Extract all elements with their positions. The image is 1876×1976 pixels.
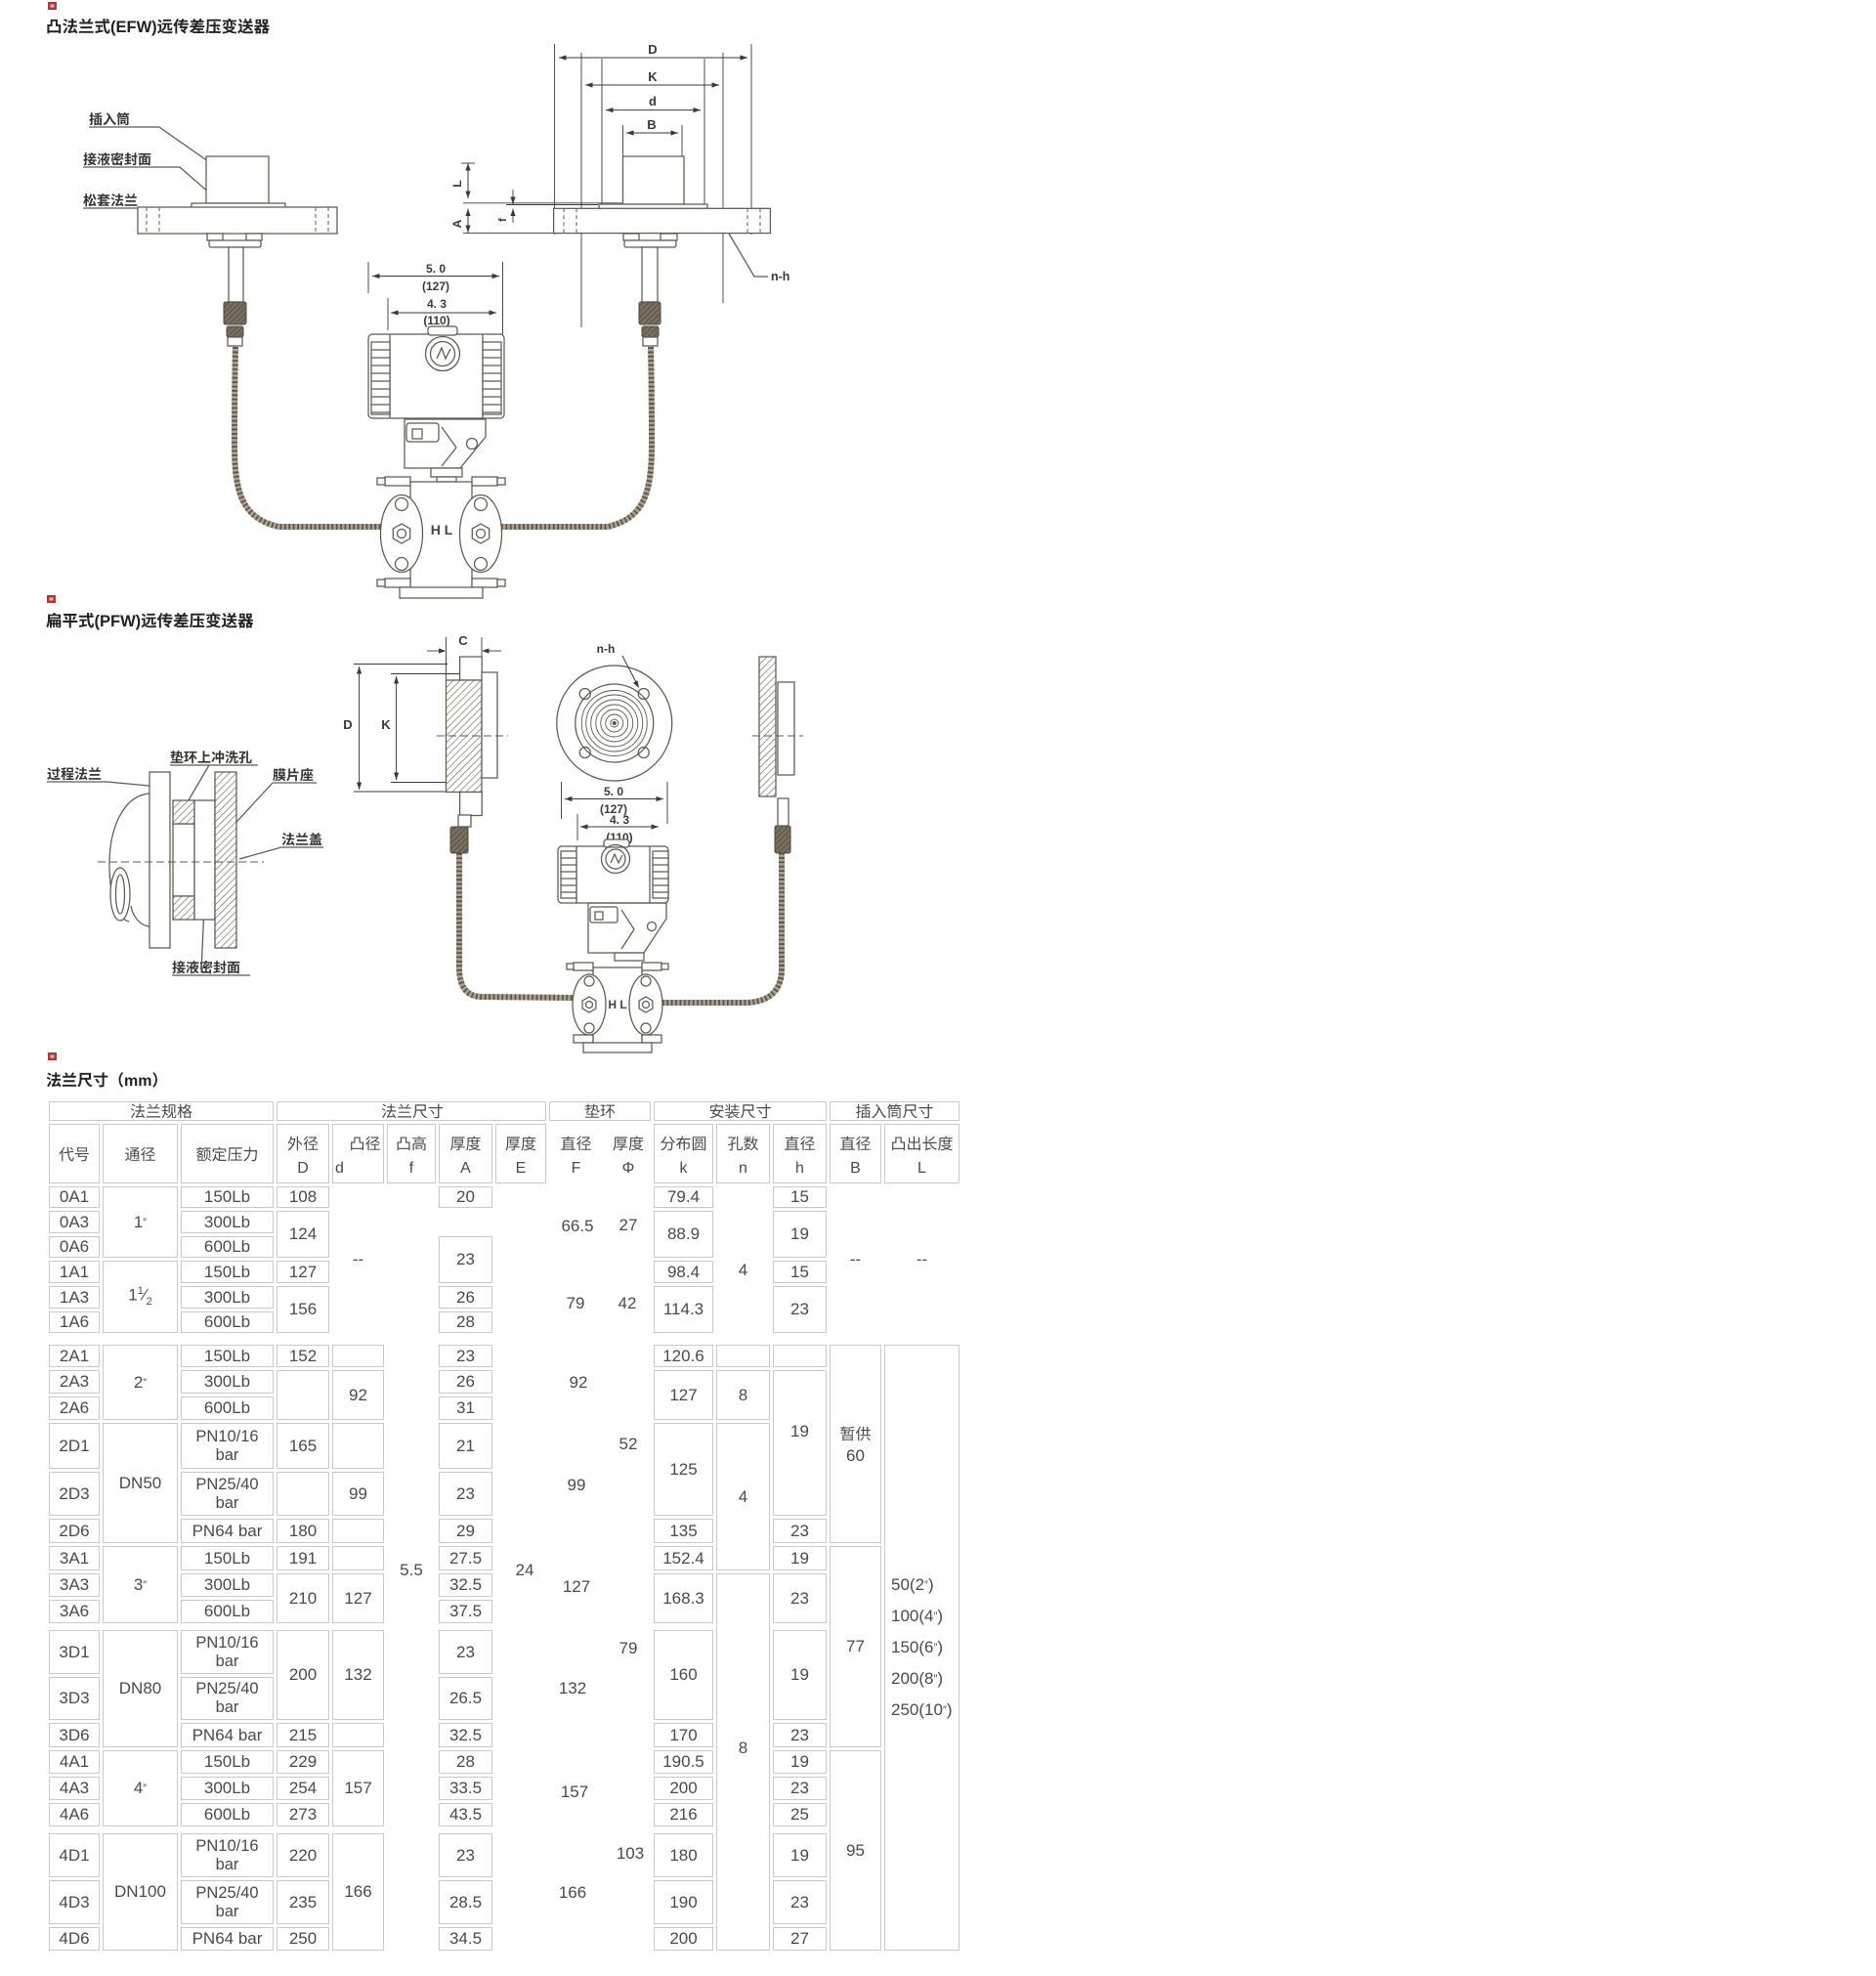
svg-text:d: d	[335, 1160, 344, 1177]
svg-text:Φ: Φ	[622, 1160, 635, 1177]
svg-text:127: 127	[563, 1577, 590, 1596]
svg-text:H L: H L	[608, 998, 626, 1011]
svg-text:42: 42	[618, 1294, 637, 1312]
svg-text:4. 3: 4. 3	[610, 813, 629, 827]
svg-text:B: B	[850, 1160, 861, 1177]
svg-text:(EFW): (EFW)	[110, 19, 157, 36]
svg-text:4. 3: 4. 3	[427, 297, 447, 311]
svg-text:A: A	[460, 1160, 471, 1177]
svg-text:f: f	[497, 218, 509, 222]
svg-text:52: 52	[619, 1435, 638, 1453]
svg-text:5. 0: 5. 0	[426, 262, 446, 276]
svg-text:D: D	[343, 717, 352, 732]
svg-text:166: 166	[559, 1883, 586, 1902]
svg-text:79: 79	[567, 1294, 585, 1312]
svg-text:79: 79	[619, 1639, 638, 1657]
svg-text:103: 103	[617, 1844, 644, 1863]
svg-text:157: 157	[561, 1783, 588, 1801]
svg-text:D: D	[297, 1160, 309, 1177]
svg-text:24: 24	[516, 1561, 534, 1579]
svg-text:d: d	[649, 94, 657, 108]
svg-text:D: D	[648, 42, 657, 57]
svg-text:5.5: 5.5	[400, 1561, 423, 1579]
svg-text:mm: mm	[124, 1073, 151, 1090]
svg-text:(127): (127)	[422, 279, 449, 293]
svg-text:L: L	[917, 1160, 926, 1177]
svg-text:n: n	[739, 1160, 747, 1177]
svg-text:h: h	[795, 1160, 804, 1177]
svg-text:A: A	[450, 219, 464, 228]
svg-text:n-h: n-h	[597, 642, 616, 656]
svg-text:99: 99	[568, 1476, 586, 1494]
svg-text:F: F	[572, 1160, 581, 1177]
svg-text:27: 27	[619, 1216, 638, 1234]
svg-text:E: E	[516, 1160, 527, 1177]
svg-text:K: K	[648, 69, 658, 84]
svg-text:L: L	[450, 180, 464, 187]
svg-text:H L: H L	[431, 522, 453, 537]
svg-text:K: K	[381, 717, 391, 732]
svg-text:66.5: 66.5	[561, 1217, 593, 1235]
svg-text:(110): (110)	[423, 314, 449, 327]
svg-text:C: C	[458, 633, 468, 648]
svg-text:f: f	[409, 1160, 414, 1177]
svg-text:B: B	[647, 117, 656, 132]
svg-text:5. 0: 5. 0	[604, 785, 623, 798]
svg-text:(PFW): (PFW)	[95, 613, 142, 630]
svg-text:k: k	[680, 1160, 689, 1177]
svg-text:92: 92	[570, 1373, 588, 1392]
svg-text:n-h: n-h	[771, 270, 789, 283]
svg-text:132: 132	[559, 1679, 586, 1697]
